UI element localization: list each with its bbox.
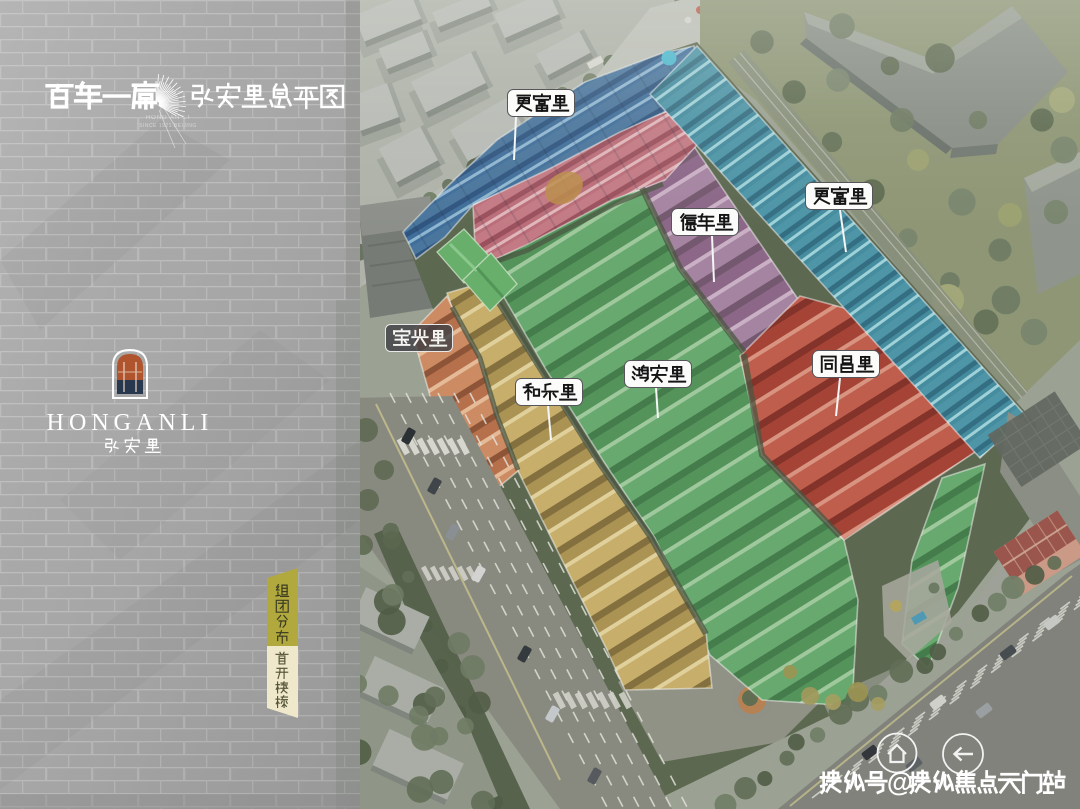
svg-text:HONG AN LI: HONG AN LI (146, 115, 190, 121)
svg-text:@: @ (887, 767, 913, 797)
svg-text:HONGANLI: HONGANLI (47, 410, 214, 436)
svg-text:SINCE 1921 BEIJING: SINCE 1921 BEIJING (139, 123, 197, 129)
